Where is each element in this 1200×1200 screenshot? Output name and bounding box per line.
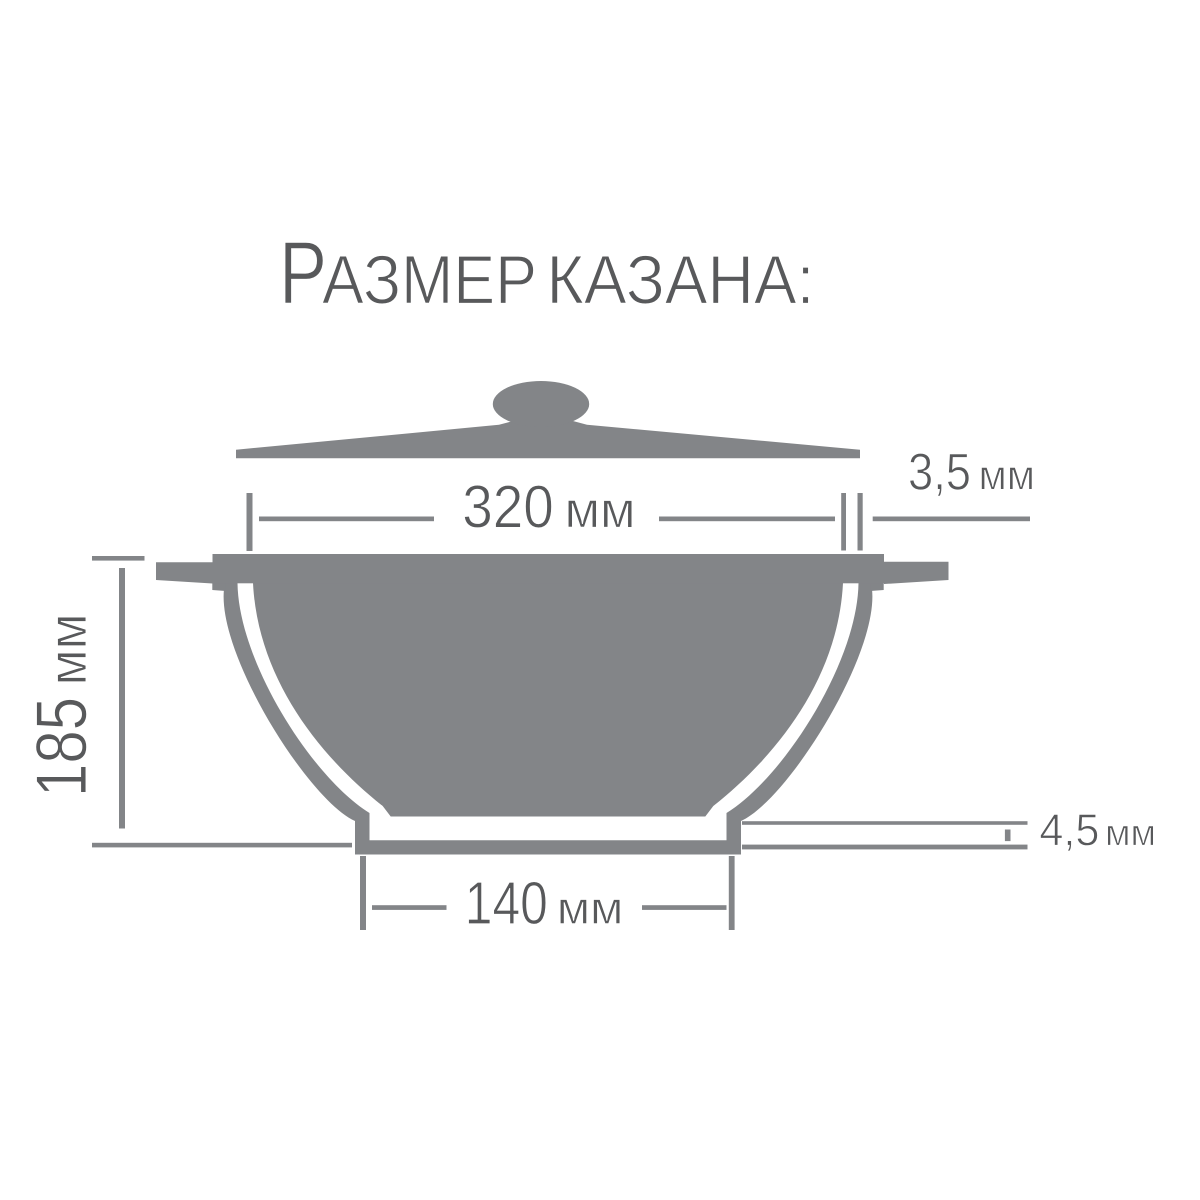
svg-text:140: 140 (465, 869, 548, 937)
svg-text:мм: мм (564, 481, 635, 538)
svg-text:3,5: 3,5 (908, 444, 971, 502)
svg-text:мм: мм (38, 614, 98, 686)
svg-text:320: 320 (462, 472, 554, 540)
svg-text:185: 185 (22, 697, 102, 797)
svg-text:КАЗАНА:: КАЗАНА: (546, 241, 814, 318)
svg-text:Р: Р (279, 222, 327, 322)
svg-text:АЗМЕР: АЗМЕР (322, 241, 537, 318)
